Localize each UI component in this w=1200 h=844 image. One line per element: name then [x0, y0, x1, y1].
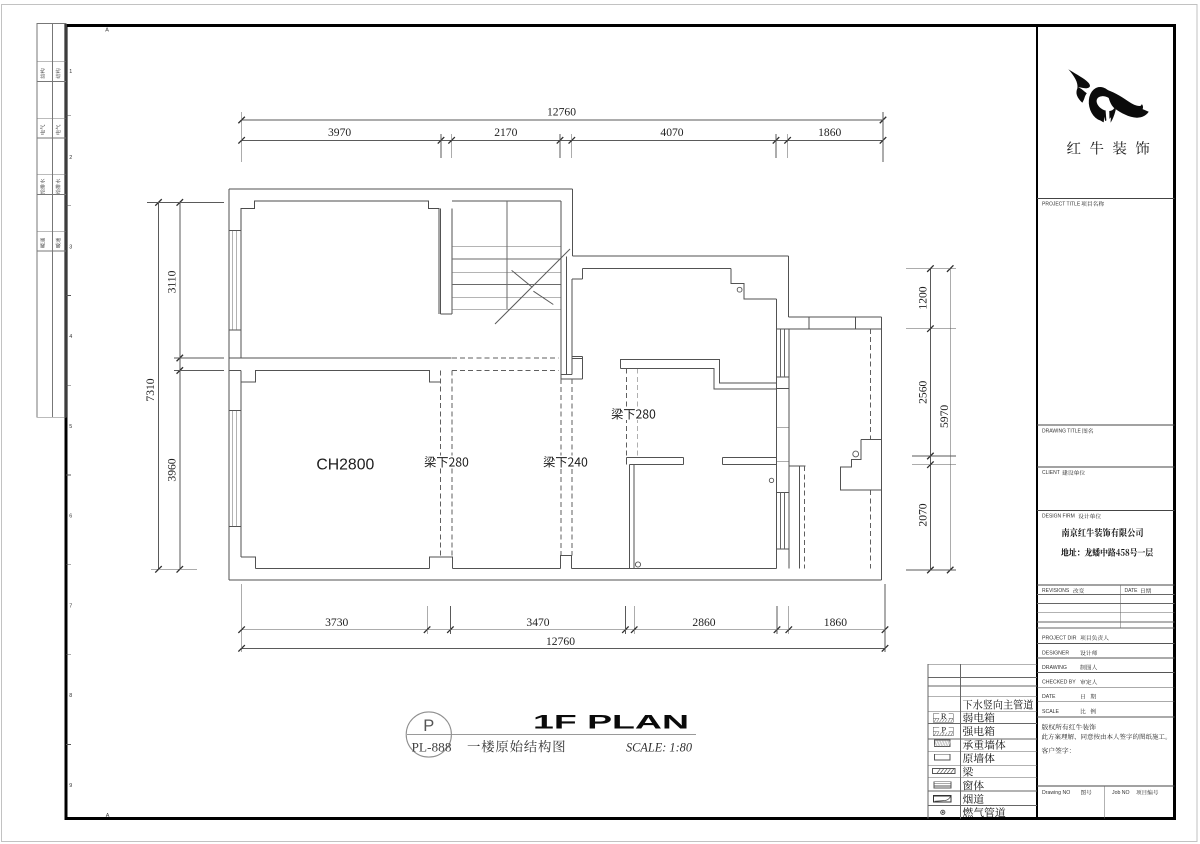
- svg-text:3470: 3470: [526, 616, 549, 629]
- svg-text:SCALE: SCALE: [1042, 709, 1060, 715]
- svg-text:12760: 12760: [546, 635, 575, 648]
- svg-text:PROJECT TITLE: PROJECT TITLE: [1042, 201, 1081, 207]
- svg-text:PROJECT DIR: PROJECT DIR: [1042, 635, 1077, 641]
- svg-text:1F PLAN: 1F PLAN: [533, 711, 689, 733]
- svg-text:P: P: [941, 725, 946, 735]
- svg-text:CHECKED BY: CHECKED BY: [1042, 680, 1076, 686]
- svg-text:5: 5: [69, 424, 72, 430]
- svg-text:4: 4: [69, 334, 72, 340]
- svg-text:DRAWING TITLE: DRAWING TITLE: [1042, 428, 1082, 434]
- svg-text:3730: 3730: [325, 616, 348, 629]
- svg-text:DRAWING: DRAWING: [1042, 665, 1067, 671]
- svg-text:2560: 2560: [917, 381, 930, 404]
- svg-text:P: P: [423, 717, 434, 735]
- svg-text:3960: 3960: [165, 458, 178, 481]
- svg-text:DATE: DATE: [1125, 588, 1139, 594]
- svg-text:PL-888: PL-888: [412, 740, 452, 754]
- svg-text:Drawing NO: Drawing NO: [1042, 790, 1070, 796]
- svg-text:2070: 2070: [917, 503, 930, 526]
- svg-text:5970: 5970: [938, 405, 951, 428]
- svg-text:DATE: DATE: [1042, 694, 1056, 700]
- svg-text:9: 9: [69, 783, 72, 789]
- svg-text:1860: 1860: [824, 616, 847, 629]
- svg-text:SCALE: 1:80: SCALE: 1:80: [626, 741, 693, 755]
- svg-text:CH2800: CH2800: [316, 457, 374, 474]
- svg-text:A: A: [106, 813, 110, 819]
- svg-text:R: R: [941, 711, 947, 721]
- svg-text:REVISIONS: REVISIONS: [1042, 588, 1070, 594]
- svg-text:CLIENT: CLIENT: [1042, 470, 1060, 476]
- svg-text:12760: 12760: [547, 106, 576, 119]
- svg-text:A: A: [105, 28, 109, 34]
- svg-text:Job NO: Job NO: [1112, 790, 1130, 796]
- svg-text:DESIGN FIRM: DESIGN FIRM: [1042, 514, 1075, 520]
- svg-text:1200: 1200: [917, 286, 930, 309]
- svg-text:3970: 3970: [328, 126, 351, 139]
- svg-text:1860: 1860: [818, 126, 841, 139]
- svg-text:3110: 3110: [165, 270, 178, 293]
- svg-text:3: 3: [69, 245, 72, 251]
- svg-text:4070: 4070: [660, 126, 683, 139]
- svg-text:2170: 2170: [494, 126, 517, 139]
- svg-text:8: 8: [69, 693, 72, 699]
- svg-text:6: 6: [69, 514, 72, 520]
- svg-text:7310: 7310: [144, 378, 157, 401]
- svg-text:2860: 2860: [692, 616, 715, 629]
- svg-text:2: 2: [69, 155, 72, 161]
- svg-text:1: 1: [69, 69, 72, 75]
- svg-text:DESIGNER: DESIGNER: [1042, 651, 1069, 657]
- svg-text:7: 7: [69, 603, 72, 609]
